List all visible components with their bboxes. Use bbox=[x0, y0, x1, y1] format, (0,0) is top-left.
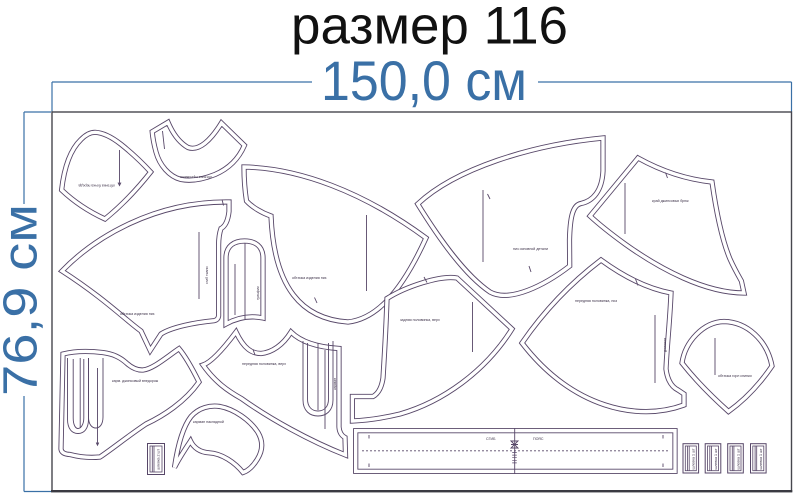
svg-text:передняя половинка, низ: передняя половинка, низ bbox=[575, 299, 617, 303]
svg-text:низ основной детали: низ основной детали bbox=[513, 247, 548, 251]
svg-text:шлевка 1 шт: шлевка 1 шт bbox=[714, 448, 718, 469]
svg-text:карман: карман bbox=[333, 378, 337, 390]
svg-text:карм. джинсовый внедорож: карм. джинсовый внедорож bbox=[112, 379, 159, 383]
svg-text:гульфик: гульфик bbox=[256, 286, 260, 300]
svg-text:обтачка горл спинки: обтачка горл спинки bbox=[718, 374, 752, 378]
svg-text:шлевка 2 шт: шлевка 2 шт bbox=[157, 449, 161, 470]
svg-text:обтачка горловины: обтачка горловины bbox=[180, 175, 212, 179]
svg-text:ПОЯС: ПОЯС bbox=[533, 437, 544, 441]
svg-text:шлевка 1 шт: шлевка 1 шт bbox=[736, 448, 740, 469]
svg-text:шлевка 1 шт: шлевка 1 шт bbox=[759, 448, 763, 469]
svg-text:шлевка 1 шт: шлевка 1 шт bbox=[692, 448, 696, 469]
svg-text:обтачка изделия низ: обтачка изделия низ bbox=[120, 312, 155, 316]
svg-text:карман накладной: карман накладной bbox=[193, 420, 224, 424]
svg-text:обтачка бочка переда: обтачка бочка переда bbox=[78, 184, 115, 188]
svg-text:передняя половинка, верх: передняя половинка, верх bbox=[242, 362, 286, 366]
svg-text:СГИБ: СГИБ bbox=[486, 437, 496, 441]
svg-text:размер 116: размер 116 bbox=[291, 0, 568, 56]
svg-text:обтачка изделия низ: обтачка изделия низ bbox=[292, 276, 327, 280]
svg-text:сгиб ткани: сгиб ткани bbox=[205, 267, 209, 284]
svg-text:задняя половинка, верх: задняя половинка, верх bbox=[400, 318, 440, 322]
svg-text:150,0 см: 150,0 см bbox=[321, 49, 527, 112]
svg-text:долевая: долевая bbox=[663, 338, 667, 352]
svg-text:край джинсовых брюк: край джинсовых брюк bbox=[652, 199, 689, 203]
svg-text:76,9 см: 76,9 см bbox=[0, 204, 48, 396]
